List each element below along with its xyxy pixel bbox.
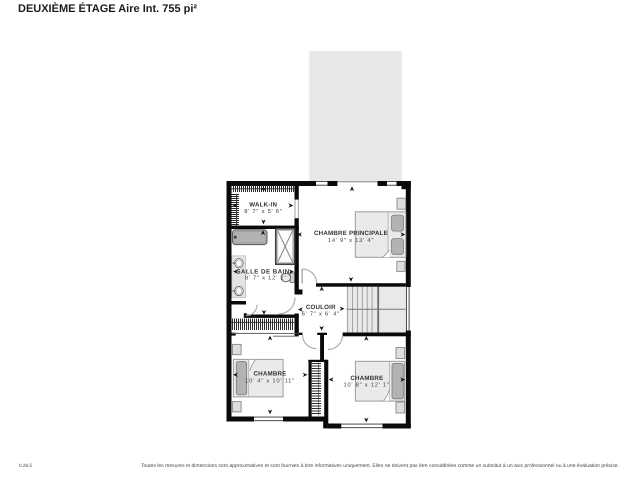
svg-text:14' 9" x 13' 4": 14' 9" x 13' 4" — [328, 237, 374, 244]
svg-text:WALK-IN: WALK-IN — [249, 202, 277, 209]
svg-text:10' 4" x 10' 11": 10' 4" x 10' 11" — [245, 378, 295, 385]
svg-text:DEUXIÈME ÉTAGE Aire Int. 755 p: DEUXIÈME ÉTAGE Aire Int. 755 pi² — [18, 2, 197, 15]
svg-text:8' 7" x 5' 6": 8' 7" x 5' 6" — [244, 208, 282, 215]
svg-text:10' 8" x 12' 1": 10' 8" x 12' 1" — [343, 381, 389, 388]
svg-text:CHAMBRE: CHAMBRE — [350, 375, 383, 382]
svg-text:0.26.5: 0.26.5 — [19, 463, 32, 468]
svg-text:COULOIR: COULOIR — [306, 304, 336, 311]
svg-text:8' 7" x 12' 1": 8' 7" x 12' 1" — [245, 275, 287, 282]
svg-text:6' 7" x 6' 4": 6' 7" x 6' 4" — [302, 311, 340, 318]
svg-text:Toutes les mesures et dimensio: Toutes les mesures et dimensions sont ap… — [141, 463, 619, 469]
svg-text:CHAMBRE PRINCIPALE: CHAMBRE PRINCIPALE — [314, 230, 388, 237]
svg-text:CHAMBRE: CHAMBRE — [253, 371, 286, 378]
svg-text:SALLE DE BAIN: SALLE DE BAIN — [236, 268, 289, 275]
